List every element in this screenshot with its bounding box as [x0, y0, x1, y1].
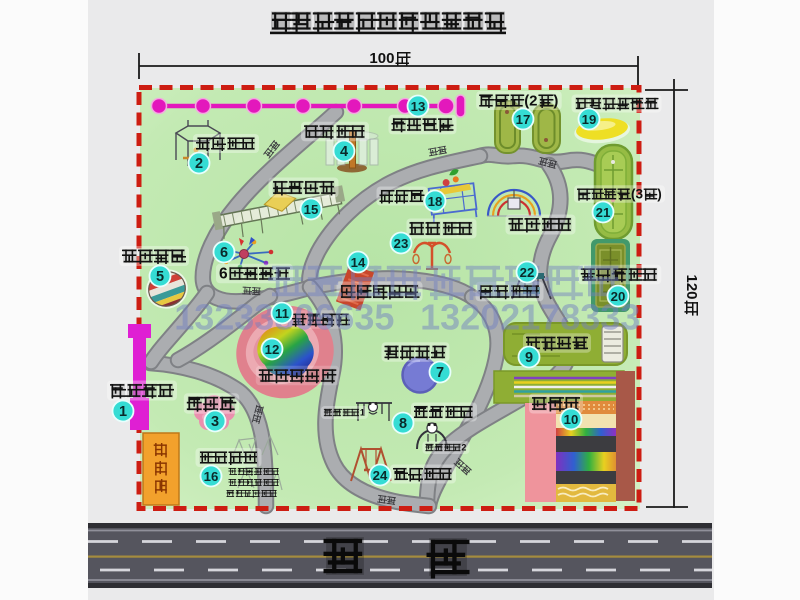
svg-text:1: 1	[360, 407, 365, 417]
svg-text:4: 4	[340, 144, 348, 160]
svg-text:23: 23	[394, 236, 409, 251]
svg-text:): )	[553, 92, 558, 109]
svg-text:22: 22	[520, 265, 535, 280]
svg-text:20: 20	[611, 289, 626, 304]
svg-text:6: 6	[219, 266, 228, 283]
svg-text:5: 5	[156, 269, 164, 285]
svg-text:7: 7	[436, 365, 444, 381]
svg-text:8: 8	[399, 416, 407, 432]
svg-text:): )	[657, 186, 662, 201]
svg-text:10: 10	[564, 412, 579, 427]
svg-text:19: 19	[582, 112, 597, 127]
svg-text:1: 1	[119, 404, 127, 420]
svg-text:14: 14	[351, 255, 366, 270]
svg-text:12: 12	[265, 342, 280, 357]
svg-text:(2: (2	[524, 92, 537, 109]
svg-text:6: 6	[220, 245, 228, 261]
svg-text:16: 16	[204, 469, 219, 484]
svg-text:17: 17	[516, 112, 531, 127]
svg-text:100: 100	[369, 50, 394, 67]
svg-text:13: 13	[411, 99, 426, 114]
svg-text:24: 24	[373, 468, 388, 483]
svg-text:(3: (3	[631, 186, 643, 201]
svg-text:21: 21	[596, 205, 611, 220]
svg-text:2: 2	[461, 442, 466, 452]
svg-text:9: 9	[525, 350, 533, 366]
svg-text:2: 2	[195, 156, 203, 172]
svg-text:15: 15	[304, 202, 319, 217]
svg-text:18: 18	[428, 194, 443, 209]
svg-text:11: 11	[275, 306, 289, 321]
svg-text:3: 3	[211, 414, 219, 430]
svg-text:13202178333: 13202178333	[420, 297, 640, 338]
svg-text:120: 120	[683, 275, 700, 300]
